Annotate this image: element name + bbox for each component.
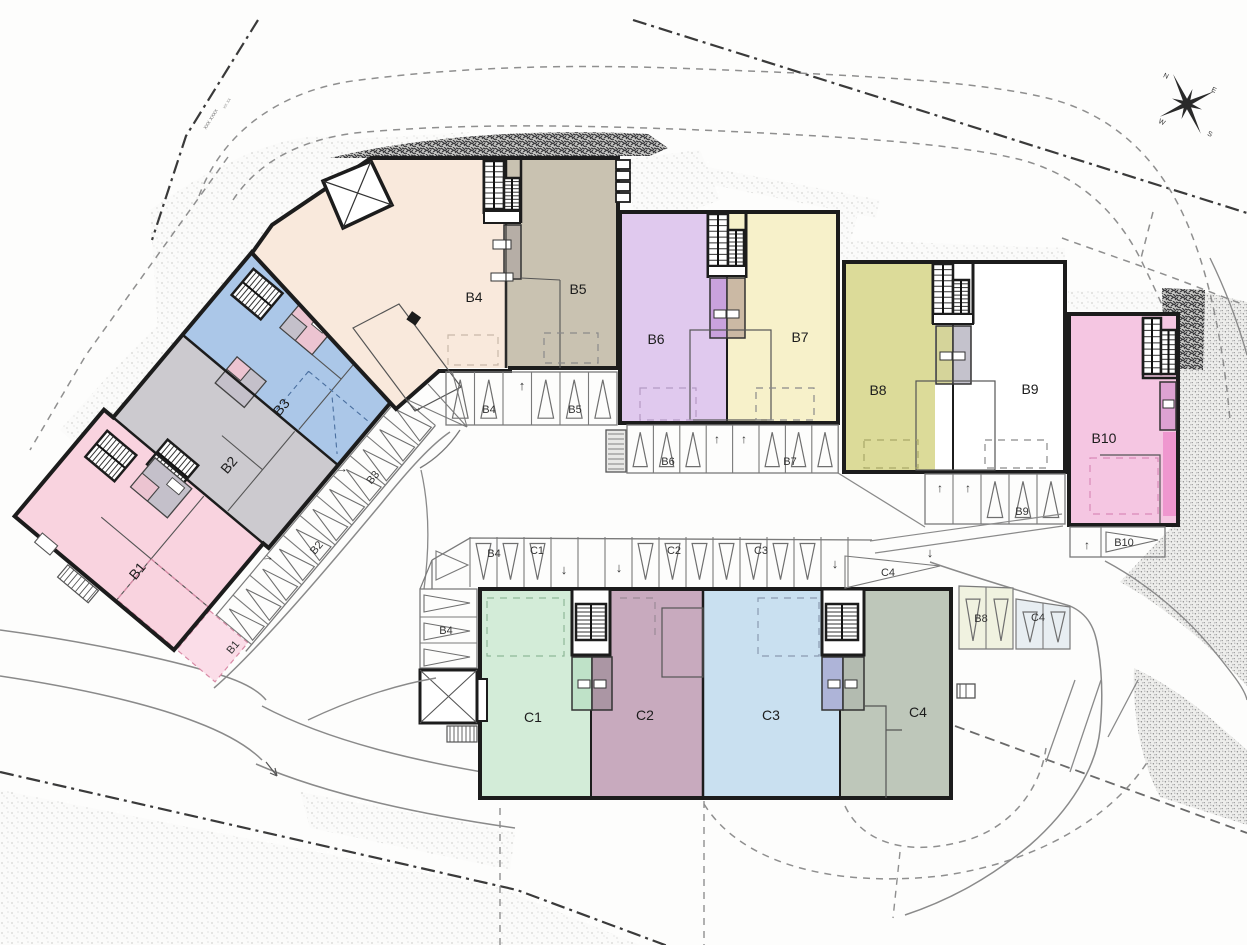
svg-text:C2: C2 — [667, 545, 681, 557]
svg-text:C3: C3 — [762, 707, 780, 723]
svg-text:B8: B8 — [974, 613, 987, 625]
svg-text:B4: B4 — [487, 548, 500, 560]
svg-text:B4: B4 — [482, 404, 495, 416]
svg-text:↑: ↑ — [714, 432, 720, 446]
svg-text:C2: C2 — [636, 707, 654, 723]
svg-text:C4: C4 — [881, 567, 895, 579]
svg-text:↓: ↓ — [927, 545, 934, 560]
svg-text:B7: B7 — [783, 456, 796, 468]
svg-text:B7: B7 — [791, 329, 808, 345]
svg-text:C1: C1 — [530, 545, 544, 557]
svg-text:B5: B5 — [569, 281, 586, 297]
svg-text:B8: B8 — [869, 382, 886, 398]
svg-text:B6: B6 — [661, 456, 674, 468]
svg-text:C4: C4 — [909, 704, 927, 720]
svg-text:B4: B4 — [439, 625, 452, 637]
svg-text:↑: ↑ — [965, 481, 971, 495]
svg-text:C4: C4 — [1031, 612, 1045, 624]
svg-text:B5: B5 — [568, 404, 581, 416]
svg-text:↑: ↑ — [261, 555, 275, 562]
svg-text:B10: B10 — [1092, 430, 1117, 446]
svg-text:↑: ↑ — [741, 432, 747, 446]
svg-text:↑: ↑ — [937, 481, 943, 495]
svg-text:C3: C3 — [754, 545, 768, 557]
svg-text:C1: C1 — [524, 709, 542, 725]
svg-text:B6: B6 — [647, 331, 664, 347]
svg-text:B9: B9 — [1015, 506, 1028, 518]
svg-text:B10: B10 — [1114, 537, 1134, 549]
svg-text:↓: ↓ — [832, 556, 839, 571]
svg-text:↓: ↓ — [616, 560, 623, 575]
svg-text:↑: ↑ — [519, 378, 526, 393]
svg-text:↑: ↑ — [1084, 538, 1090, 552]
svg-text:↓: ↓ — [561, 562, 568, 577]
svg-text:B4: B4 — [465, 289, 482, 305]
svg-text:↑: ↑ — [335, 467, 349, 474]
svg-text:B9: B9 — [1021, 381, 1038, 397]
